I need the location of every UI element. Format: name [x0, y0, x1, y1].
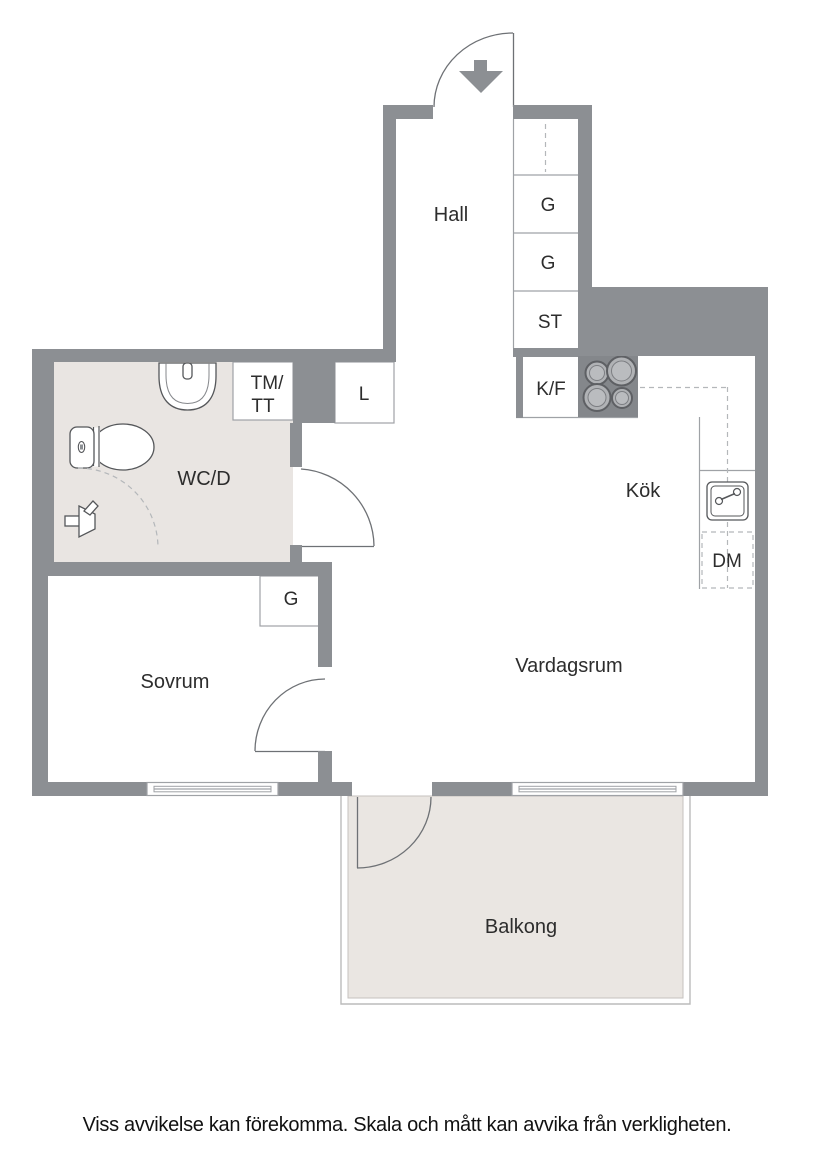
- wardrobe-top-label: G: [541, 195, 556, 216]
- entrance-arrow-icon: [459, 60, 503, 93]
- balcony-floor: [348, 796, 683, 998]
- floor-plan-page: Hall G G ST K/F Kök DM WC/D TM/ TT L G S…: [0, 0, 814, 1152]
- linen-closet-label: L: [359, 384, 370, 405]
- kitchen-label: Kök: [626, 480, 661, 502]
- storage-closet-label: ST: [538, 312, 563, 333]
- windows: [147, 783, 683, 796]
- bathroom-sink-icon: [159, 363, 216, 410]
- entrance-door: [434, 33, 514, 107]
- bedroom-door: [255, 679, 325, 752]
- toilet-icon: [70, 424, 154, 470]
- fridge-freezer-label: K/F: [536, 379, 566, 400]
- dishwasher-label: DM: [712, 551, 742, 572]
- disclaimer-text: Viss avvikelse kan förekomma. Skala och …: [83, 1114, 732, 1136]
- floor-plan-drawing: Hall G G ST K/F Kök DM WC/D TM/ TT L G S…: [0, 0, 814, 1152]
- balcony-label: Balkong: [485, 916, 557, 938]
- bathroom-label: WC/D: [177, 468, 230, 490]
- kitchen-sink-icon: [707, 482, 748, 520]
- bedroom-wardrobe-label: G: [284, 589, 299, 610]
- washer-label-line1: TM/: [251, 373, 284, 394]
- hall-label: Hall: [434, 204, 468, 226]
- living-room-label: Vardagsrum: [515, 655, 622, 677]
- bedroom-window: [147, 783, 278, 796]
- bathroom-door: [296, 469, 374, 547]
- stove-icon: [578, 355, 638, 417]
- washer-label-line2: TT: [251, 396, 275, 417]
- living-room-window: [512, 783, 683, 796]
- wardrobe-mid-label: G: [541, 253, 556, 274]
- bedroom-label: Sovrum: [141, 671, 210, 693]
